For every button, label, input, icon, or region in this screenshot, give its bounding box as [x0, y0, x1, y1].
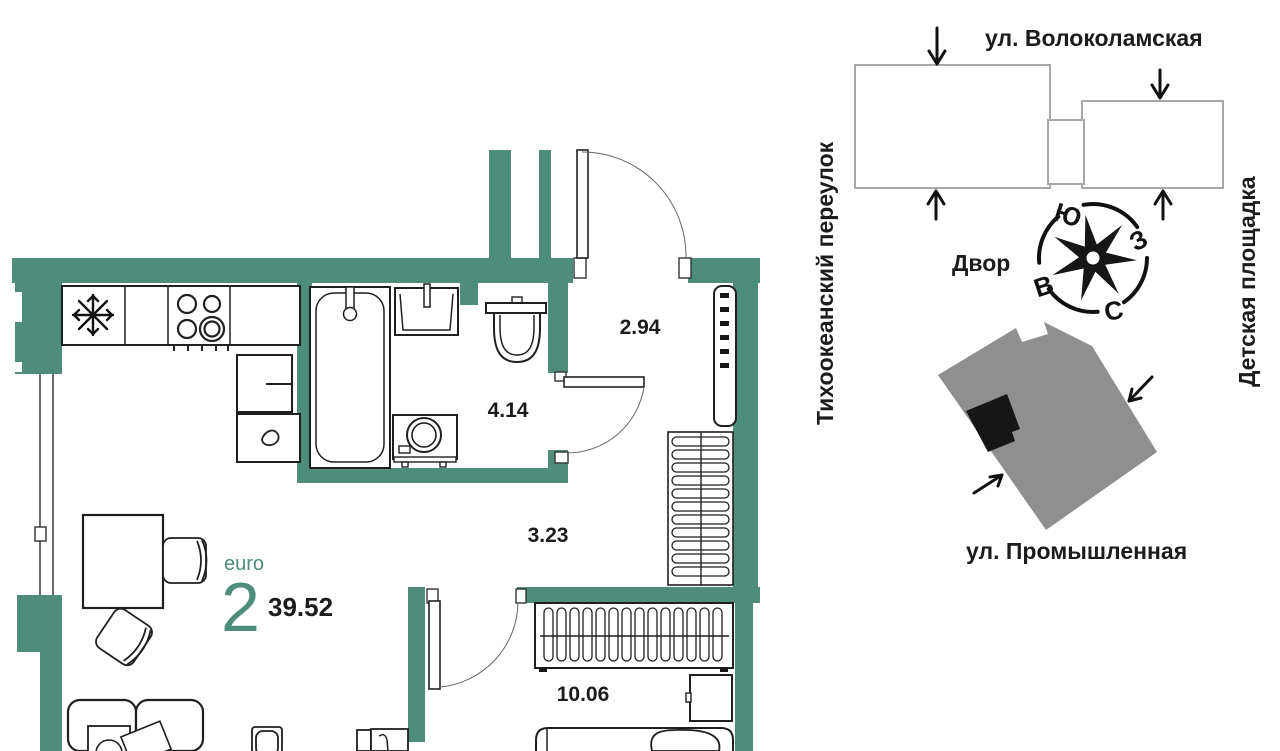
playground-label-right: Детская площадка	[1234, 191, 1261, 387]
electric-panel	[714, 286, 736, 426]
arrow-up-icon	[1155, 191, 1171, 219]
vent-shaft-2	[539, 150, 551, 258]
hallway-coat-rack	[668, 432, 733, 585]
wall-sink	[395, 284, 458, 335]
floorplan-page: Ю З В С 2.94 4.14 3.23 10.06 euro 2 39.5…	[0, 0, 1280, 751]
street-label-bottom: ул. Промышленная	[966, 538, 1187, 565]
bedroom-wardrobe	[535, 603, 733, 672]
compass-south: Ю	[1051, 197, 1086, 234]
arrow-down-icon	[929, 28, 945, 64]
area-label-bathroom: 4.14	[478, 399, 538, 423]
site-building-left	[855, 65, 1050, 188]
entry-door	[574, 150, 691, 278]
arrow-to-building-icon	[974, 475, 1002, 493]
site-building-right	[1082, 101, 1223, 188]
nightstand	[686, 675, 732, 721]
bedroom-door	[427, 589, 526, 689]
street-label-top: ул. Волоколамская	[985, 25, 1203, 52]
door-leaf	[564, 377, 644, 387]
door-jamb	[555, 452, 568, 463]
site-building-connector	[1048, 120, 1084, 184]
kitchen-cabinet-sink	[237, 355, 300, 462]
armchair-partial	[357, 729, 408, 751]
site-buildings-outline	[855, 65, 1223, 188]
door-leaf	[577, 150, 588, 258]
toilet	[486, 297, 546, 362]
plan-graphics: Ю З В С	[0, 0, 1280, 751]
door-jamb	[574, 258, 586, 278]
bathroom-door	[555, 372, 644, 463]
pillow	[651, 730, 719, 751]
compass-west: З	[1124, 223, 1152, 257]
vent-shaft-1	[489, 150, 511, 258]
area-label-corridor: 3.23	[518, 524, 578, 548]
compass-north: С	[1101, 294, 1126, 327]
street-label-left: Тихоокеанский переулок	[812, 147, 839, 425]
area-label-bedroom: 10.06	[543, 683, 623, 707]
compass-rose: Ю З В С	[1030, 197, 1152, 328]
dining-chair-bottom	[93, 606, 156, 669]
bed	[536, 728, 733, 751]
door-jamb	[679, 258, 691, 278]
compass-east: В	[1030, 269, 1057, 303]
dining-chair-right	[163, 538, 207, 583]
pouf	[252, 727, 282, 751]
window-handle	[35, 527, 46, 541]
dining-table	[83, 515, 163, 608]
window-living	[35, 374, 53, 595]
arrow-up-icon	[928, 191, 944, 219]
sofa	[68, 700, 203, 751]
sink-faucet	[424, 284, 430, 307]
arrow-down-icon	[1152, 70, 1168, 98]
rooms-count-label: 2	[221, 572, 260, 642]
arrow-to-building-icon	[1129, 377, 1152, 401]
site-our-building	[938, 322, 1157, 530]
bathtub	[310, 287, 390, 468]
washing-machine	[393, 415, 457, 467]
tub-faucet	[346, 287, 354, 309]
door-jamb	[516, 589, 526, 603]
snowflake-icon	[73, 295, 113, 335]
courtyard-label: Двор	[952, 250, 1010, 277]
area-label-hallway: 2.94	[610, 316, 670, 340]
door-leaf	[429, 601, 440, 689]
total-area-label: 39.52	[268, 592, 333, 623]
